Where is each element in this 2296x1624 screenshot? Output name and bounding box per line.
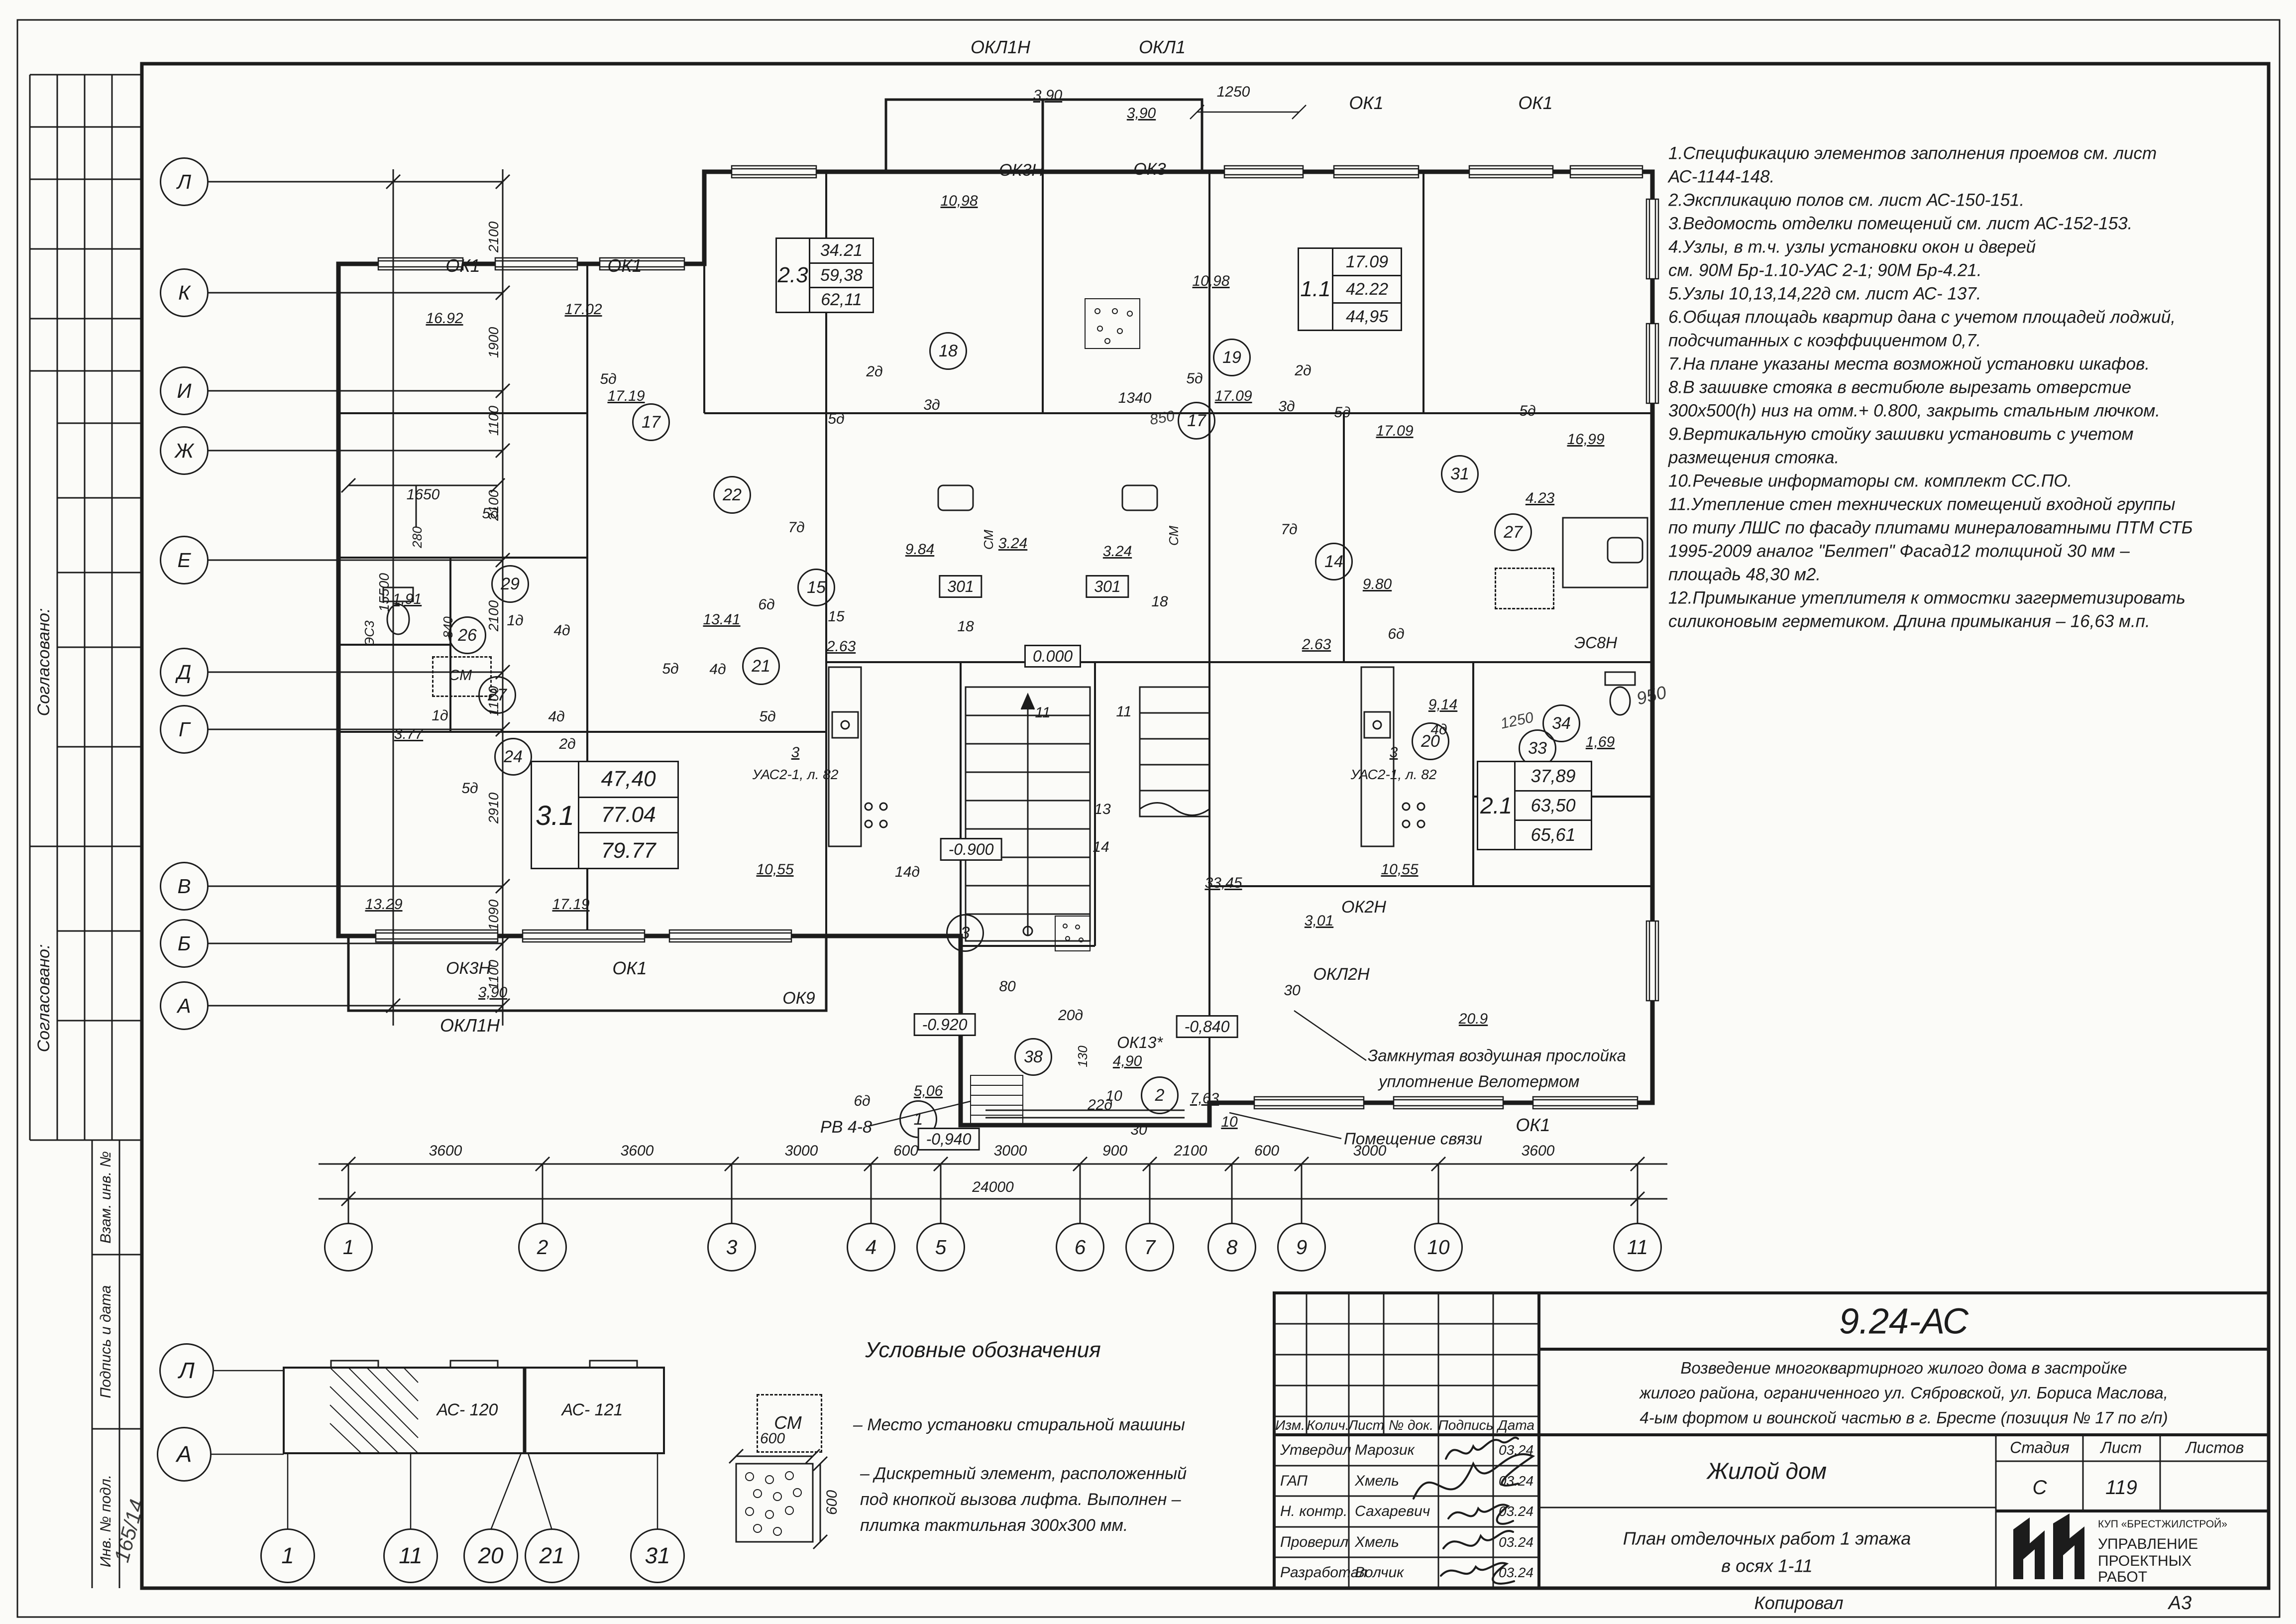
axis-bubble-И: И: [160, 366, 209, 415]
axis-bubble-9: 9: [1277, 1223, 1326, 1272]
axis-bubble-20: 20: [463, 1528, 518, 1583]
room-area: 10,98: [940, 194, 978, 209]
axis-dim: 2100: [487, 490, 501, 521]
door-mark: 5д: [1186, 371, 1203, 386]
elevation-box: -0,940: [918, 1128, 980, 1151]
sig-header-cell: Подпись: [1438, 1417, 1493, 1433]
legend-text: под кнопкой вызова лифта. Выполнен –: [860, 1491, 1181, 1508]
axis-dim: 15500: [377, 573, 391, 612]
axis-bubble-31: 31: [630, 1528, 685, 1583]
note-line: 7.На плане указаны места возможной устан…: [1668, 355, 2150, 373]
callout-14: 14: [1315, 543, 1353, 580]
axis-bubble-К: К: [160, 268, 209, 317]
room-area: 9.84: [905, 542, 934, 557]
org-line: РАБОТ: [2098, 1569, 2147, 1586]
room-area: 5,06: [914, 1084, 943, 1099]
drawing-title-line: в осях 1-11: [1721, 1555, 1812, 1576]
apartment-area-value: 77.04: [579, 798, 677, 834]
door-mark: 1д: [432, 708, 448, 723]
sidebar-label: Согласовано:: [35, 608, 52, 716]
dim-label: 1340: [1118, 391, 1152, 406]
apartment-area-value: 63,50: [1516, 792, 1591, 821]
axis-dim: 2910: [487, 793, 501, 823]
callout-17: 17: [632, 403, 670, 441]
room-area: 2.63: [1302, 637, 1331, 652]
doc-title: Жилой дом: [1707, 1458, 1827, 1485]
note-line: 8.В зашивке стояка в вестибюле вырезать …: [1668, 379, 2131, 396]
axis-bubble-В: В: [160, 862, 209, 911]
object-title-line: жилого района, ограниченного ул. Сябровс…: [1640, 1384, 2168, 1402]
door-mark: 5д: [1519, 404, 1535, 419]
axis-bubble-7: 7: [1125, 1223, 1174, 1272]
key-plan-label: АС- 121: [562, 1401, 623, 1418]
callout-26: 26: [448, 616, 486, 654]
axis-bubble-8: 8: [1207, 1223, 1256, 1272]
axis-bubble-11: 11: [1613, 1223, 1662, 1272]
door-mark: 3д: [923, 398, 940, 413]
room-area: 2.63: [827, 639, 856, 654]
callout-19: 19: [1213, 339, 1251, 376]
dim-label: 80: [999, 979, 1015, 994]
dim-label: 30: [1284, 983, 1300, 998]
dim-label: 18: [1151, 594, 1168, 609]
ref-mark: 3: [1390, 745, 1398, 760]
callout-24: 24: [494, 738, 532, 776]
window-mark: ОК3Н: [446, 960, 491, 977]
axis-bubble-Л: Л: [159, 1343, 214, 1398]
apartment-area-value: 79.77: [579, 833, 677, 868]
sig-role: Разработал: [1280, 1564, 1367, 1582]
dim-label: 1250: [1217, 85, 1250, 100]
dim-label: 15: [828, 609, 844, 624]
window-mark: ЭС3: [363, 620, 376, 646]
drawing-title-line: План отделочных работ 1 этажа: [1623, 1528, 1911, 1548]
drawing-sheet: ОКЛ1НОКЛ13,903,901250ОК1ОК1ОК3НОК310,981…: [0, 0, 2296, 1624]
sheet-label: Лист: [2101, 1439, 2142, 1457]
callout-21: 21: [742, 647, 780, 685]
axis-bubble-3: 3: [707, 1223, 756, 1272]
door-mark: 3д: [1278, 399, 1295, 414]
room-area: 3,01: [1305, 914, 1333, 928]
org-line: УПРАВЛЕНИЕ: [2098, 1536, 2198, 1553]
door-mark: 22д: [1088, 1098, 1112, 1113]
dim-label: 10: [1221, 1115, 1237, 1130]
sheet-number: 119: [2105, 1476, 2137, 1499]
callout-3: 3: [946, 914, 984, 952]
ref-mark: 3: [791, 745, 800, 760]
axis-dim: 3000: [785, 1144, 818, 1159]
note-line: силиконовым герметиком. Длина примыкания…: [1668, 613, 2150, 630]
apartment-number: 2.1: [1478, 762, 1516, 849]
axis-dim: 1100: [487, 960, 501, 990]
key-plan-label: АС- 120: [437, 1401, 498, 1418]
window-mark: ОКЛ2Н: [1313, 966, 1369, 983]
room-area: 16,99: [1567, 432, 1604, 447]
annotation: Замкнутая воздушная прослойка: [1368, 1047, 1626, 1064]
apartment-area-table: 1.117.0942.2244,95: [1298, 247, 1402, 331]
axis-dim: 2100: [487, 600, 501, 631]
window-mark: ОК1: [1518, 94, 1552, 112]
callout-15: 15: [797, 569, 835, 606]
sig-name: Хмель: [1355, 1534, 1399, 1551]
axis-dim: 24000: [972, 1180, 1013, 1195]
dim-label: 280: [411, 526, 424, 548]
door-mark: 5д: [759, 709, 775, 724]
ref-mark: РВ 4-8: [820, 1119, 872, 1136]
legend-title: Условные обозначения: [865, 1339, 1101, 1361]
note-line: 3.Ведомость отделки помещений см. лист А…: [1668, 215, 2132, 232]
callout-17: 17: [1178, 402, 1215, 440]
dim-label: 1650: [407, 487, 440, 502]
axis-dim: 3600: [1522, 1144, 1555, 1159]
washing-machine-mark: СМ: [982, 530, 995, 550]
room-area: 1,91: [393, 592, 422, 607]
elevation-box: -0.900: [940, 838, 1002, 861]
door-mark: 6д: [854, 1094, 870, 1109]
axis-bubble-А: А: [160, 981, 209, 1030]
sig-date: 03.24: [1499, 1565, 1533, 1581]
room-area: 20.9: [1459, 1012, 1488, 1027]
note-line: 2.Экспликацию полов см. лист АС-150-151.: [1668, 192, 2024, 209]
axis-dim: 900: [1102, 1144, 1127, 1159]
ref-mark: 11: [1116, 704, 1131, 719]
axis-bubble-Г: Г: [160, 705, 209, 754]
door-mark: 1д: [507, 613, 523, 628]
stage-label: Стадия: [2010, 1439, 2070, 1457]
room-area: 3.24: [998, 536, 1027, 551]
object-title-line: Возведение многоквартирного жилого дома …: [1680, 1359, 2127, 1378]
axis-bubble-Д: Д: [160, 648, 209, 696]
note-line: подсчитанных с коэффициентом 0,7.: [1668, 332, 1981, 349]
callout-18: 18: [929, 332, 967, 370]
axis-dim: 3000: [1353, 1144, 1387, 1159]
room-area: 16.92: [426, 311, 463, 326]
sidebar-label: Согласовано:: [35, 944, 52, 1052]
axis-dim: 600: [1254, 1144, 1279, 1159]
window-mark: ОК3Н: [999, 162, 1044, 179]
door-mark: 5д: [600, 372, 616, 387]
elevation-box: 301: [939, 575, 982, 598]
apartment-area-value: 62,11: [810, 288, 873, 312]
axis-bubble-6: 6: [1056, 1223, 1104, 1272]
sig-date: 03.24: [1499, 1442, 1533, 1458]
callout-27: 27: [1494, 513, 1532, 551]
note-line: АС-1144-148.: [1668, 168, 1774, 186]
window-mark: ОК1: [1349, 94, 1383, 112]
org-company: КУП «БРЕСТЖИЛСТРОЙ»: [2098, 1518, 2227, 1530]
door-mark: 5д: [828, 412, 844, 427]
sig-role: ГАП: [1280, 1473, 1308, 1490]
elevation-box: 0.000: [1024, 645, 1081, 668]
window-mark: ОКЛ1: [1139, 38, 1186, 56]
elevation-box: 301: [1086, 575, 1129, 598]
ref-mark: УАС2-1, л. 82: [1351, 768, 1437, 782]
room-area: 17.09: [1376, 424, 1413, 439]
axis-bubble-11: 11: [383, 1528, 438, 1583]
apartment-area-value: 17.09: [1333, 249, 1401, 276]
room-area: 4,90: [1113, 1054, 1142, 1069]
org-line: ПРОЕКТНЫХ: [2098, 1553, 2191, 1570]
callout-2: 2: [1141, 1076, 1179, 1114]
apartment-area-value: 44,95: [1333, 304, 1401, 330]
room-area: 17.19: [607, 389, 645, 404]
note-line: 10.Речевые информаторы см. комплект СС.П…: [1668, 472, 2072, 490]
axis-bubble-10: 10: [1414, 1223, 1463, 1272]
sig-header-cell: № док.: [1389, 1417, 1433, 1433]
window-mark: ОК2Н: [1341, 899, 1386, 916]
axis-dim: 3600: [429, 1144, 462, 1159]
door-mark: 5д: [461, 781, 478, 796]
room-area: 3.24: [1103, 544, 1132, 559]
apartment-area-table: 2.137,8963,5065,61: [1477, 761, 1592, 850]
callout-38: 38: [1014, 1038, 1052, 1076]
room-area: 10,98: [1192, 274, 1229, 289]
axis-dim: 2100: [1174, 1144, 1207, 1159]
window-mark: ОК9: [782, 990, 815, 1007]
apartment-area-value: 42.22: [1333, 276, 1401, 304]
washing-machine-mark: СМ: [1167, 526, 1180, 546]
sig-date: 03.24: [1499, 1504, 1533, 1519]
axis-dim: 1100: [487, 406, 501, 436]
apartment-number: 1.1: [1299, 249, 1333, 330]
note-line: 5.Узлы 10,13,14,22д см. лист АС- 137.: [1668, 285, 1981, 303]
format-label: А3: [2169, 1594, 2191, 1613]
window-mark: ОК1: [607, 257, 642, 275]
legend-text: – Дискретный элемент, расположенный: [860, 1465, 1187, 1482]
object-title-line: 4-ым фортом и воинской частью в г. Брест…: [1640, 1408, 2168, 1427]
note-line: 300x500(h) низ на отм.+ 0.800, закрыть с…: [1668, 402, 2160, 420]
axis-dim: 3000: [994, 1144, 1027, 1159]
sig-role: Утвердил: [1280, 1442, 1351, 1459]
axis-dim: 3600: [621, 1144, 654, 1159]
axis-bubble-1: 1: [260, 1528, 315, 1583]
sig-header-cell: Лист: [1348, 1417, 1384, 1433]
note-line: 1995-2009 аналог "Белтеп" Фасад12 толщин…: [1668, 543, 2130, 560]
sig-name: Марозик: [1355, 1442, 1415, 1459]
room-area: 17.19: [552, 897, 589, 912]
door-mark: 5д: [1334, 405, 1350, 420]
room-area: 9.80: [1363, 577, 1392, 592]
note-line: размещения стояка.: [1668, 449, 1839, 466]
axis-bubble-2: 2: [518, 1223, 567, 1272]
note-line: 6.Общая площадь квартир дана с учетом пл…: [1668, 309, 2176, 326]
dim-label: 600: [825, 1490, 840, 1515]
axis-dim: 2100: [487, 222, 501, 252]
axis-bubble-Ж: Ж: [160, 426, 209, 475]
dim-label: 130: [1076, 1045, 1089, 1067]
axis-bubble-А: А: [157, 1427, 212, 1482]
sig-header-cell: Дата: [1498, 1417, 1534, 1433]
room-area: 9,14: [1428, 697, 1457, 712]
apartment-area-value: 37,89: [1516, 762, 1591, 792]
ref-mark: 14: [1093, 840, 1109, 855]
door-mark: 7д: [788, 520, 804, 535]
axis-bubble-Б: Б: [160, 919, 209, 968]
dim-label: 18: [957, 619, 974, 634]
window-mark: ОК1: [445, 257, 480, 275]
note-line: см. 90М Бр-1.10-УАС 2-1; 90М Бр-4.21.: [1668, 262, 1982, 279]
sig-name: Хмель: [1355, 1473, 1399, 1490]
apartment-area-value: 34.21: [810, 239, 873, 264]
note-line: 1.Спецификацию элементов заполнения прое…: [1668, 145, 2157, 162]
room-area: 10,55: [756, 862, 793, 877]
apartment-area-value: 65,61: [1516, 821, 1591, 849]
axis-bubble-Е: Е: [160, 536, 209, 584]
sig-header-cell: Колич.: [1307, 1417, 1349, 1433]
axis-dim: 1900: [487, 327, 501, 358]
window-mark: ОК3: [1133, 161, 1166, 178]
room-area: 33,45: [1204, 876, 1242, 891]
axis-bubble-1: 1: [324, 1223, 373, 1272]
sidebar-label: Подпись и дата: [99, 1285, 113, 1398]
note-line: 12.Примыкание утеплителя к отмостки заге…: [1668, 589, 2186, 607]
door-mark: 5д: [662, 662, 678, 677]
window-mark: ОК1: [612, 959, 647, 977]
window-mark: ОКЛ1Н: [971, 38, 1030, 56]
note-line: 11.Утепление стен технических помещений …: [1668, 496, 2176, 513]
apartment-number: 2.3: [777, 239, 810, 312]
note-line: площадь 48,30 м2.: [1668, 566, 1821, 583]
door-mark: 2д: [559, 737, 575, 752]
dim-label: 30: [1130, 1123, 1147, 1138]
sig-role: Н. контр.: [1280, 1503, 1347, 1520]
apartment-area-value: 47,40: [579, 762, 677, 798]
axis-bubble-21: 21: [525, 1528, 579, 1583]
door-mark: 4д: [548, 709, 564, 724]
sig-header-cell: Изм.: [1275, 1417, 1305, 1433]
note-line: по типу ЛШС по фасаду плитами минералова…: [1668, 519, 2192, 537]
sidebar-label: Взам. инв. №: [99, 1151, 113, 1244]
door-mark: 7д: [1281, 522, 1297, 537]
room-area: 10,55: [1381, 862, 1418, 877]
axis-bubble-5: 5: [916, 1223, 965, 1272]
ref-mark: 13: [1094, 802, 1110, 817]
washing-machine-box: [432, 656, 492, 697]
sig-role: Проверил: [1280, 1534, 1348, 1551]
sig-name: Сахаревич: [1355, 1503, 1430, 1520]
note-line: 4.Узлы, в т.ч. узлы установки окон и две…: [1668, 238, 2036, 256]
washing-machine-box: [1495, 568, 1554, 609]
room-area: 1,69: [1586, 735, 1615, 750]
axis-dim: 1090: [487, 900, 501, 930]
window-mark: ОК13*: [1117, 1035, 1163, 1050]
sig-date: 03.24: [1499, 1473, 1533, 1489]
door-mark: 6д: [1388, 627, 1404, 642]
room-area: 17.09: [1214, 389, 1252, 404]
room-area: 7,63: [1190, 1091, 1219, 1106]
axis-bubble-Л: Л: [160, 157, 209, 206]
door-mark: 20д: [1058, 1008, 1083, 1023]
elevation-box: -0.920: [914, 1013, 976, 1036]
sheet-code: 9.24-АС: [1839, 1301, 1968, 1343]
room-area: 13.29: [365, 897, 402, 912]
window-mark: ОКЛ1Н: [440, 1017, 500, 1035]
window-mark: ОК1: [1516, 1116, 1550, 1134]
room-area: 13.41: [703, 612, 740, 627]
washing-machine-box: [757, 1394, 822, 1453]
door-mark: 2д: [866, 364, 882, 379]
room-area: 4.23: [1526, 491, 1554, 506]
apartment-number: 3.1: [532, 762, 579, 868]
room-area: 3,90: [1033, 88, 1062, 103]
door-mark: 4д: [709, 662, 726, 677]
ref-mark: 11: [1035, 705, 1050, 720]
ref-mark: УАС2-1, л. 82: [753, 768, 839, 782]
apartment-area-value: 59,38: [810, 264, 873, 289]
room-area: 17.02: [564, 302, 602, 317]
door-mark: 2д: [1295, 363, 1311, 378]
window-mark: ЭС8Н: [1574, 635, 1617, 651]
elevation-box: -0,840: [1176, 1015, 1238, 1038]
sig-name: Волчик: [1355, 1564, 1404, 1582]
callout-22: 22: [713, 476, 751, 514]
callout-31: 31: [1441, 455, 1479, 493]
note-line: 9.Вертикальную стойку зашивки установить…: [1668, 426, 2134, 443]
annotation: уплотнение Велотермом: [1379, 1073, 1579, 1090]
callout-29: 29: [491, 565, 529, 603]
apartment-area-table: 2.334.2159,3862,11: [775, 237, 874, 313]
sig-date: 03.24: [1499, 1534, 1533, 1550]
axis-dim: 600: [893, 1144, 918, 1159]
stage-value: С: [2033, 1476, 2047, 1499]
sheets-label: Листов: [2186, 1439, 2244, 1457]
legend-text: – Место установки стиральной машины: [853, 1416, 1185, 1433]
room-area: 3.77: [394, 727, 423, 742]
door-mark: 14д: [895, 865, 920, 880]
copied-label: Копировал: [1754, 1594, 1843, 1612]
apartment-area-table: 3.147,4077.0479.77: [531, 761, 679, 869]
door-mark: 4д: [553, 623, 570, 638]
callout-20: 20: [1412, 722, 1449, 760]
room-area: 3,90: [1127, 106, 1156, 121]
legend-text: плитка тактильная 300х300 мм.: [860, 1517, 1128, 1534]
door-mark: 6д: [758, 597, 774, 612]
axis-bubble-4: 4: [847, 1223, 895, 1272]
